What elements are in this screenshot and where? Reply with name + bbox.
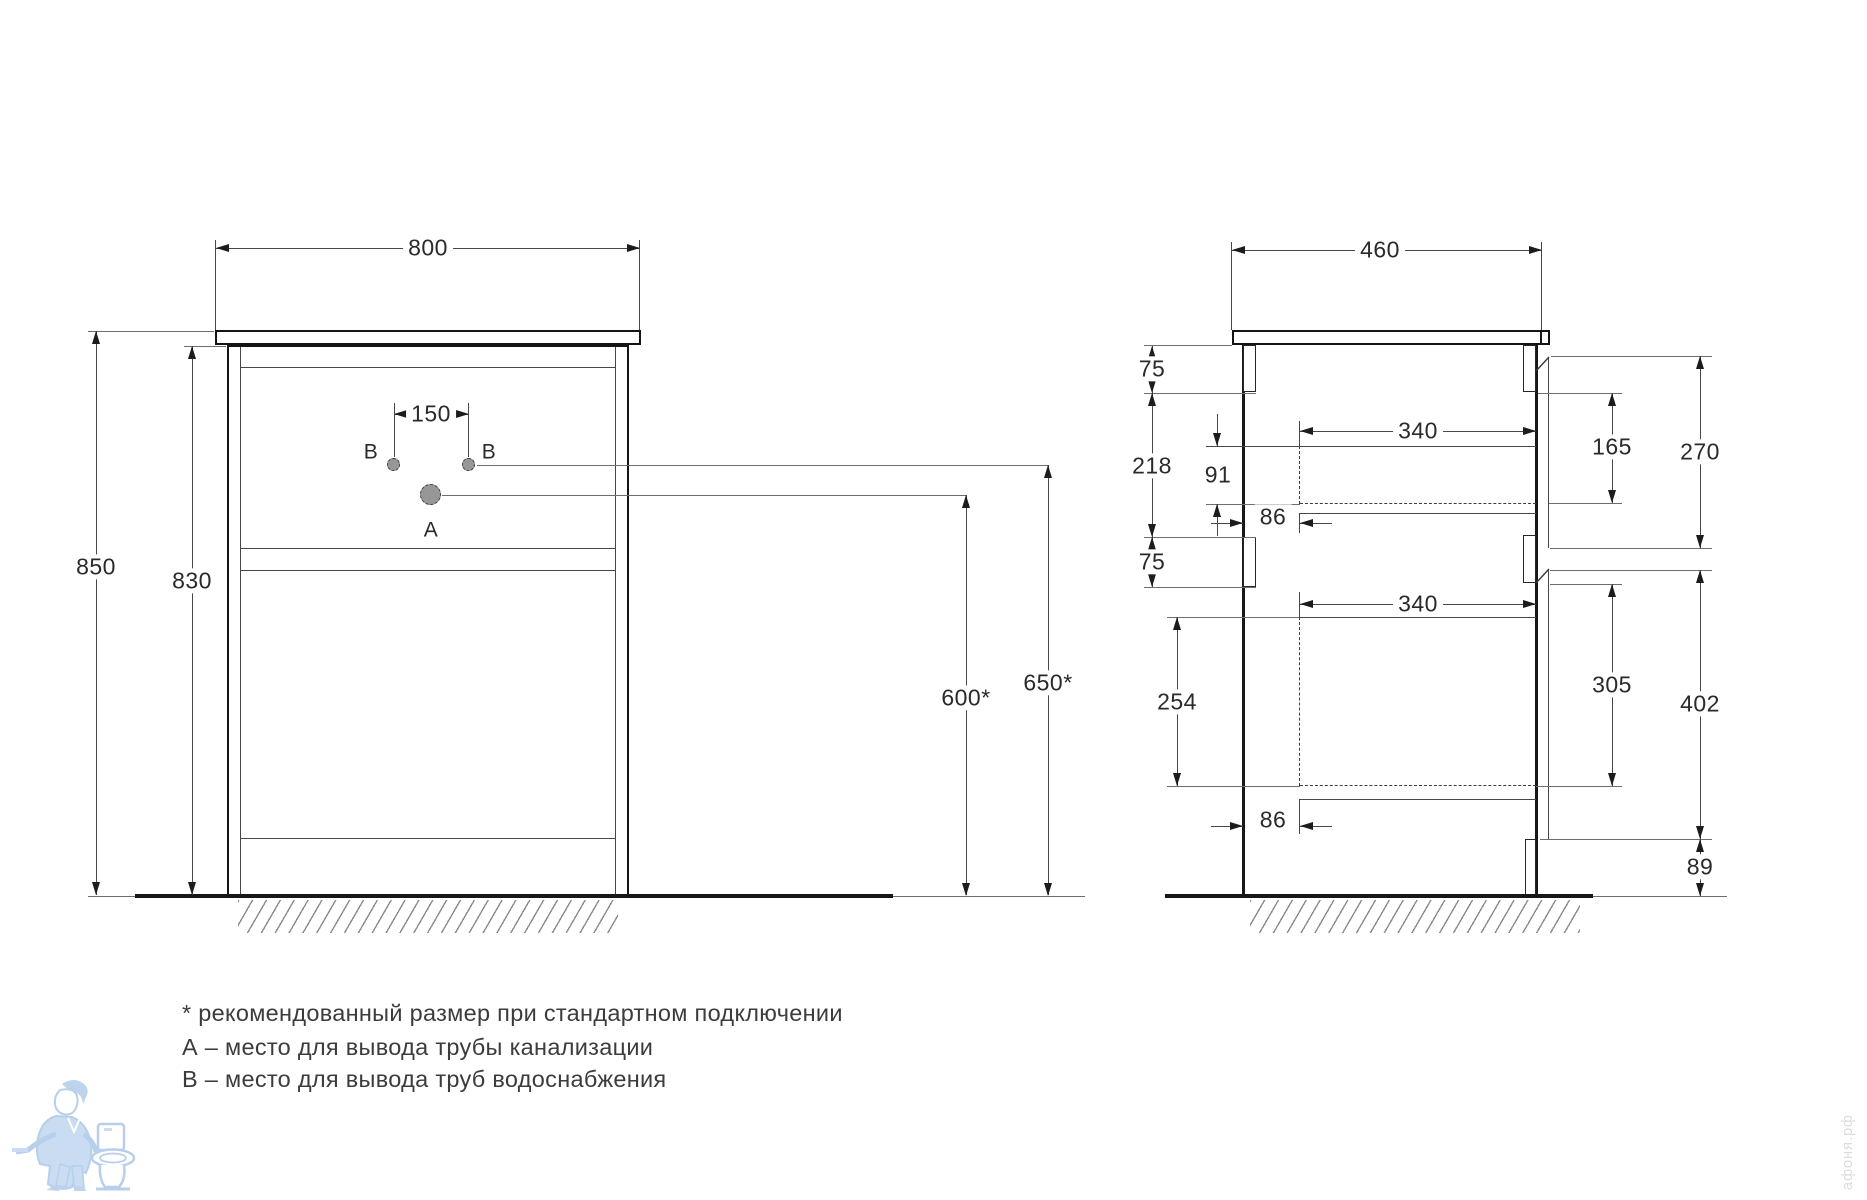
dim-drawer2-back-gap: 86 [1255, 807, 1292, 832]
dim-drawer2-width: 340 [1393, 591, 1443, 616]
drawer2-rail-line [1300, 799, 1536, 800]
dim-line [96, 331, 97, 895]
arrow-left-icon [394, 410, 407, 418]
ext-line [1299, 513, 1300, 533]
drawer1-bottom-hidden [1300, 503, 1536, 504]
dim-mid-back-rail: 75 [1134, 549, 1171, 574]
arrow-up-icon [1173, 617, 1181, 630]
dim-drawer1-top-offset: 91 [1200, 462, 1237, 487]
dim-total-height: 850 [71, 554, 121, 579]
back-rail-mid [1243, 537, 1256, 587]
arrow-down-icon [962, 883, 970, 896]
back-rail-top [1243, 345, 1256, 392]
drawer1-back-hidden [1299, 446, 1300, 504]
front-rail-mid [1523, 535, 1536, 583]
ext-line [1549, 503, 1622, 504]
dim-plinth-height: 89 [1682, 854, 1719, 879]
arrow-right-icon [1529, 246, 1542, 254]
dim-water-outlet-height: 650* [1018, 670, 1077, 695]
arrow-left-icon [216, 244, 229, 252]
drain-hole-a [420, 484, 441, 505]
arrow-down-icon [92, 882, 100, 895]
arrow-down-icon [1148, 380, 1156, 393]
ground-hatch [1250, 900, 1580, 933]
ext-line [1231, 242, 1232, 330]
front-rail-top [1523, 345, 1536, 392]
arrow-up-icon [1148, 393, 1156, 406]
label-hole-a: А [421, 518, 442, 541]
arrow-left-icon [1232, 246, 1245, 254]
water-hole-b-right [462, 458, 475, 471]
arrow-up-icon [1696, 356, 1704, 369]
arrow-up-icon [92, 331, 100, 344]
arrow-down-icon [1696, 826, 1704, 839]
leader-line [477, 465, 1048, 466]
floor-ext-line [893, 896, 1085, 897]
arrow-up-icon [1696, 839, 1704, 852]
dim-drawer1-opening: 165 [1587, 434, 1637, 459]
drawer2-top-line [1300, 617, 1536, 618]
drawer1-front-edge [1548, 357, 1549, 548]
arrow-left-icon [1300, 427, 1313, 435]
arrow-right-icon [456, 410, 469, 418]
footnote-b: В – место для вывода труб водоснабжения [182, 1066, 666, 1093]
ext-line [1144, 587, 1256, 588]
ext-line [639, 240, 640, 330]
arrow-down-icon [1148, 524, 1156, 537]
arrow-right-icon [1523, 427, 1536, 435]
arrow-down-icon [1696, 535, 1704, 548]
arrow-up-icon [188, 346, 196, 359]
side-panel-line [615, 347, 616, 896]
ext-line [215, 240, 216, 330]
dim-drawer1-front: 270 [1675, 439, 1725, 464]
countertop-step [1540, 332, 1542, 344]
ext-line [1167, 786, 1300, 787]
arrow-down-icon [188, 882, 196, 895]
plumber-logo [10, 1076, 150, 1194]
arrow-up-icon [1044, 465, 1052, 478]
ext-line [1540, 839, 1712, 840]
dim-front-width: 800 [403, 235, 453, 260]
ext-line [1550, 570, 1712, 571]
water-hole-b-left [387, 458, 400, 471]
dim-depth: 460 [1355, 237, 1405, 262]
dim-drawer2-front: 402 [1675, 691, 1725, 716]
ext-line [1541, 242, 1542, 330]
floor-line [135, 894, 893, 899]
arrow-down-icon [1696, 883, 1704, 896]
label-hole-b-right: В [479, 440, 500, 463]
arrow-down-icon [1608, 490, 1616, 503]
dim-upper-back-section: 218 [1127, 453, 1177, 478]
back-panel-line [1242, 345, 1245, 897]
arrow-right-icon [1230, 519, 1243, 527]
floor-ext-line [88, 896, 135, 897]
arrow-left-icon [1300, 519, 1313, 527]
footnote-a: А – место для вывода трубы канализации [182, 1034, 653, 1061]
dim-drain-outlet-height: 600* [936, 685, 995, 710]
cabinet-body-front [227, 345, 629, 898]
drawer1-rail-line [1300, 513, 1536, 514]
arrow-right-icon [627, 244, 640, 252]
watermark-site: афоня.рф [1840, 1086, 1856, 1190]
dim-drawer1-back-gap: 86 [1255, 504, 1292, 529]
arrow-up-icon [1696, 570, 1704, 583]
drawer-divider-line [241, 570, 615, 571]
arrow-left-icon [1300, 822, 1313, 830]
arrow-right-icon [1230, 822, 1243, 830]
arrow-down-icon [1044, 883, 1052, 896]
footnote-asterisk: * рекомендованный размер при стандартном… [182, 1000, 843, 1027]
arrow-down-icon [1213, 433, 1221, 446]
drawer2-front-edge [1548, 570, 1549, 839]
ext-line [1167, 617, 1300, 618]
drawer-divider-line [241, 548, 615, 549]
arrow-up-icon [1608, 393, 1616, 406]
ext-line [1144, 537, 1256, 538]
countertop-front [215, 330, 641, 345]
dim-top-back-rail: 75 [1134, 356, 1171, 381]
drawer2-bottom-hidden [1300, 785, 1536, 786]
ext-line [88, 331, 214, 332]
drawer2-back-hidden [1299, 617, 1300, 786]
dim-drawer2-inner-height: 254 [1152, 689, 1202, 714]
ext-line [1299, 799, 1300, 834]
dim-drawer1-width: 340 [1393, 418, 1443, 443]
arrow-down-icon [1608, 773, 1616, 786]
dim-drawer2-opening: 305 [1587, 672, 1637, 697]
plinth-line [241, 838, 615, 839]
ext-line [1550, 548, 1712, 549]
arrow-down-icon [1173, 773, 1181, 786]
ext-line [1551, 356, 1712, 357]
top-rail-line [241, 367, 615, 368]
technical-drawing: 800 850 830 150 В В А 650* [0, 0, 1867, 1200]
leader-line [442, 495, 966, 496]
countertop-side [1232, 330, 1550, 345]
front-foot [1525, 839, 1536, 895]
dim-holes-spacing: 150 [406, 401, 456, 426]
arrow-up-icon [1213, 504, 1221, 517]
arrow-right-icon [1523, 600, 1536, 608]
arrow-up-icon [1608, 584, 1616, 597]
drawer1-top-line [1206, 446, 1536, 447]
label-hole-b-left: В [361, 440, 382, 463]
ext-line [1144, 393, 1256, 394]
dim-body-height: 830 [167, 568, 217, 593]
ext-line [1144, 345, 1232, 346]
ground-hatch [238, 900, 618, 933]
floor-line [1165, 894, 1593, 899]
ext-line [1536, 786, 1622, 787]
side-panel-line [240, 347, 241, 896]
arrow-down-icon [1148, 574, 1156, 587]
arrow-up-icon [962, 495, 970, 508]
dim-line [192, 346, 193, 895]
floor-ext-line [1593, 896, 1727, 897]
arrow-left-icon [1300, 600, 1313, 608]
